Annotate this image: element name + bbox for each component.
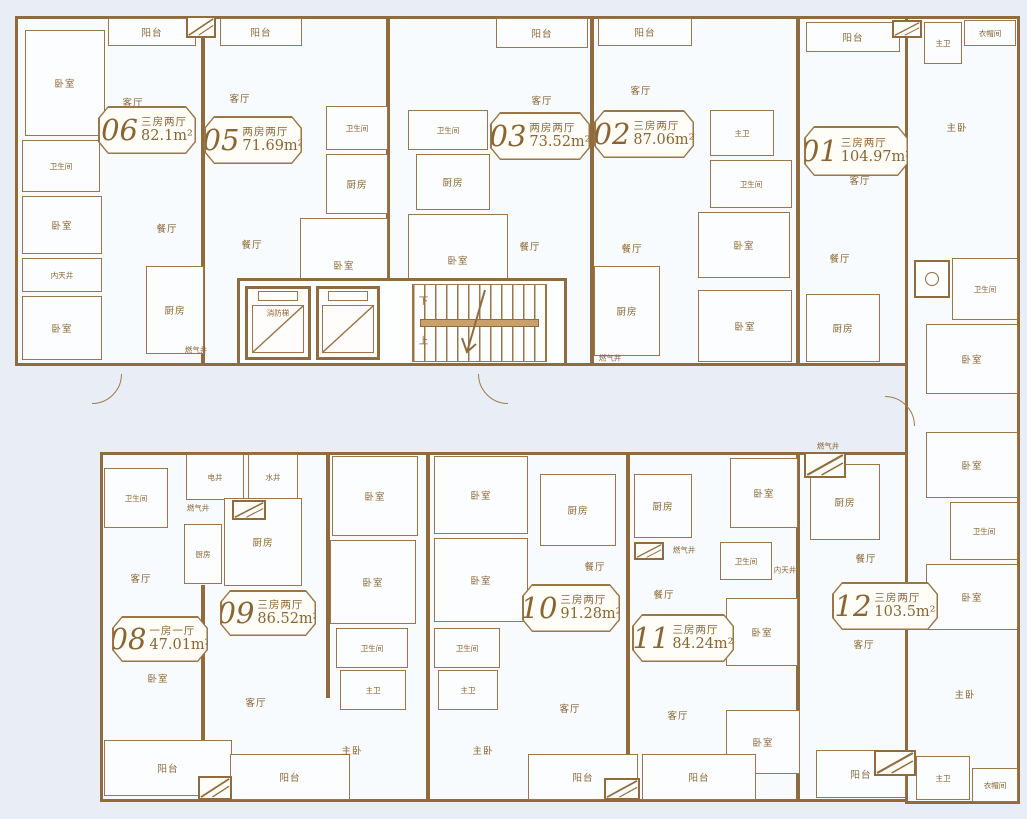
gas-shaft-label: 燃气井 bbox=[599, 353, 622, 364]
room-kitchen: 厨房 bbox=[594, 266, 660, 356]
room-master-bathroom: 主卫 bbox=[710, 110, 774, 156]
room-bathroom: 卫生间 bbox=[326, 106, 388, 150]
unit-number: 02 bbox=[594, 120, 631, 149]
unit-badge-01: 01三房两厅104.97m² bbox=[804, 126, 908, 176]
room-cloakroom: 衣帽间 bbox=[964, 20, 1016, 46]
unit-area: 73.52m² bbox=[529, 134, 590, 151]
unit-badge-inner: 09三房两厅86.52m² bbox=[222, 592, 315, 635]
room-bedroom: 卧室 bbox=[434, 538, 528, 622]
room-cloakroom: 衣帽间 bbox=[972, 768, 1018, 802]
right-tower bbox=[905, 16, 1020, 804]
unit-badge-12: 12三房两厅103.5m² bbox=[832, 582, 938, 630]
room-bedroom: 卧室 bbox=[22, 296, 102, 360]
unit-badge-inner: 01三房两厅104.97m² bbox=[806, 128, 907, 175]
unit-badge-inner: 12三房两厅103.5m² bbox=[834, 584, 937, 629]
unit-badge-inner: 10三房两厅91.28m² bbox=[524, 586, 619, 631]
unit-info: 一房一厅47.01m² bbox=[149, 625, 210, 654]
room-kitchen: 厨房 bbox=[416, 154, 490, 210]
unit-type: 三房两厅 bbox=[141, 116, 187, 128]
room-kitchen: 厨房 bbox=[326, 154, 388, 214]
room-dining-label: 餐厅 bbox=[855, 551, 876, 565]
room-bathroom: 卫生间 bbox=[720, 542, 772, 580]
unit-type: 三房两厅 bbox=[672, 624, 718, 636]
unit-badge-inner: 05两房两厅71.69m² bbox=[206, 118, 301, 163]
wall bbox=[626, 452, 630, 802]
unit-info: 三房两厅82.1m² bbox=[141, 116, 193, 145]
vent-icon bbox=[604, 778, 640, 800]
room-bathroom: 卫生间 bbox=[408, 110, 488, 150]
room-master-bedroom-label: 主卧 bbox=[946, 120, 967, 134]
unit-badge-06: 06三房两厅82.1m² bbox=[98, 106, 196, 154]
unit-number: 05 bbox=[203, 126, 240, 155]
room-bathroom: 卫生间 bbox=[952, 258, 1018, 320]
unit-info: 三房两厅103.5m² bbox=[874, 592, 935, 621]
room-master-bathroom: 主卫 bbox=[438, 670, 498, 710]
wall bbox=[796, 16, 800, 366]
room-living-label: 客厅 bbox=[667, 708, 688, 722]
unit-area: 86.52m² bbox=[257, 611, 318, 628]
unit-type: 三房两厅 bbox=[560, 594, 606, 606]
unit-area: 91.28m² bbox=[560, 606, 621, 623]
room-bedroom: 卧室 bbox=[698, 290, 792, 362]
room-bedroom: 卧室 bbox=[730, 458, 798, 528]
room-dining-label: 餐厅 bbox=[621, 241, 642, 255]
unit-badge-09: 09三房两厅86.52m² bbox=[220, 590, 316, 636]
stairs-up-label: 上 bbox=[419, 333, 430, 347]
room-bedroom: 卧室 bbox=[22, 196, 102, 254]
room-bedroom: 卧室 bbox=[698, 212, 790, 278]
elevator-indicator bbox=[328, 291, 368, 301]
room-bathroom: 卫生间 bbox=[710, 160, 792, 208]
elevator-car-icon bbox=[322, 305, 374, 353]
unit-badge-11: 11三房两厅84.24m² bbox=[632, 614, 734, 662]
room-bedroom: 卧室 bbox=[926, 564, 1018, 630]
room-bathroom: 卫生间 bbox=[336, 628, 408, 668]
room-dining-label: 餐厅 bbox=[156, 221, 177, 235]
room-kitchen: 厨房 bbox=[184, 524, 222, 584]
room-dining-label: 餐厅 bbox=[829, 251, 850, 265]
room-master-bathroom: 主卫 bbox=[924, 22, 962, 64]
room-bathroom: 卫生间 bbox=[434, 628, 500, 668]
room-master-bathroom: 主卫 bbox=[340, 670, 406, 710]
wall bbox=[426, 452, 430, 802]
room-balcony: 阳台 bbox=[496, 18, 588, 48]
gas-shaft-label: 燃气井 bbox=[187, 503, 210, 514]
room-master-bedroom-label: 主卧 bbox=[472, 743, 493, 757]
room-bedroom: 卧室 bbox=[926, 324, 1018, 394]
unit-area: 103.5m² bbox=[874, 604, 935, 621]
room-kitchen: 厨房 bbox=[806, 294, 880, 362]
unit-number: 09 bbox=[218, 599, 255, 628]
stairs-arrow-icon bbox=[455, 288, 495, 358]
unit-area: 47.01m² bbox=[149, 637, 210, 654]
unit-info: 三房两厅84.24m² bbox=[672, 624, 733, 653]
unit-badge-inner: 03两房两厅73.52m² bbox=[492, 114, 589, 159]
room-bathroom: 卫生间 bbox=[22, 140, 100, 192]
unit-badge-03: 03两房两厅73.52m² bbox=[490, 112, 590, 160]
unit-info: 三房两厅86.52m² bbox=[257, 599, 318, 628]
room-bedroom: 卧室 bbox=[330, 540, 416, 624]
room-master-bedroom-label: 主卧 bbox=[954, 687, 975, 701]
room-bathroom: 卫生间 bbox=[950, 502, 1018, 560]
vent-icon bbox=[232, 500, 266, 520]
vent-icon bbox=[892, 20, 922, 38]
room-living-label: 客厅 bbox=[630, 83, 651, 97]
room-bedroom: 卧室 bbox=[926, 432, 1018, 498]
unit-type: 两房两厅 bbox=[242, 126, 288, 138]
unit-badge-inner: 08一房一厅47.01m² bbox=[114, 618, 207, 661]
vent-icon bbox=[198, 776, 232, 800]
vent-icon bbox=[874, 750, 916, 776]
room-bedroom-label: 卧室 bbox=[147, 671, 168, 685]
gas-shaft-label: 燃气井 bbox=[185, 345, 208, 356]
unit-info: 三房两厅91.28m² bbox=[560, 594, 621, 623]
unit-area: 71.69m² bbox=[242, 138, 303, 155]
unit-badge-inner: 06三房两厅82.1m² bbox=[100, 108, 195, 153]
room-dining-label: 餐厅 bbox=[584, 559, 605, 573]
room-living-label: 客厅 bbox=[130, 571, 151, 585]
room-bedroom: 卧室 bbox=[25, 30, 105, 136]
unit-badge-08: 08一房一厅47.01m² bbox=[112, 616, 208, 662]
unit-info: 三房两厅104.97m² bbox=[841, 137, 911, 166]
room-kitchen: 厨房 bbox=[634, 474, 692, 538]
vent-icon bbox=[804, 452, 846, 478]
gas-shaft-label: 燃气井 bbox=[673, 545, 696, 556]
room-balcony: 阳台 bbox=[220, 18, 302, 46]
room-balcony: 阳台 bbox=[642, 754, 756, 800]
room-living-label: 客厅 bbox=[559, 701, 580, 715]
elevator-car-icon bbox=[252, 305, 304, 353]
room-balcony: 阳台 bbox=[230, 754, 350, 800]
room-kitchen: 厨房 bbox=[540, 474, 616, 546]
unit-area: 104.97m² bbox=[841, 149, 911, 166]
unit-info: 两房两厅73.52m² bbox=[529, 122, 590, 151]
unit-info: 两房两厅71.69m² bbox=[242, 126, 303, 155]
room-dining-label: 餐厅 bbox=[653, 587, 674, 601]
unit-type: 三房两厅 bbox=[874, 592, 920, 604]
room-balcony: 阳台 bbox=[806, 22, 900, 52]
unit-number: 12 bbox=[835, 592, 872, 621]
room-living-label: 客厅 bbox=[531, 93, 552, 107]
room-inner-courtyard: 内天井 bbox=[22, 258, 102, 292]
vent-icon bbox=[634, 542, 664, 560]
unit-type: 三房两厅 bbox=[257, 599, 303, 611]
room-bathroom: 卫生间 bbox=[104, 468, 168, 528]
room-inner-courtyard-label: 内天井 bbox=[774, 565, 797, 576]
toilet-bowl-icon bbox=[925, 272, 939, 286]
unit-number: 03 bbox=[490, 122, 527, 151]
unit-number: 08 bbox=[110, 625, 147, 654]
unit-badge-inner: 11三房两厅84.24m² bbox=[634, 616, 733, 661]
unit-badge-05: 05两房两厅71.69m² bbox=[204, 116, 302, 164]
unit-number: 10 bbox=[521, 594, 558, 623]
unit-type: 三房两厅 bbox=[633, 120, 679, 132]
room-bedroom: 卧室 bbox=[434, 456, 528, 534]
room-living-label: 客厅 bbox=[229, 91, 250, 105]
room-balcony: 阳台 bbox=[598, 18, 692, 46]
room-bedroom: 卧室 bbox=[332, 456, 418, 536]
room-master-bedroom-label: 主卧 bbox=[341, 743, 362, 757]
room-dining-label: 餐厅 bbox=[519, 239, 540, 253]
elevator-indicator bbox=[258, 291, 298, 301]
unit-type: 三房两厅 bbox=[841, 137, 887, 149]
unit-type: 两房两厅 bbox=[529, 122, 575, 134]
unit-info: 三房两厅87.06m² bbox=[633, 120, 694, 149]
room-balcony: 阳台 bbox=[108, 18, 196, 46]
unit-number: 06 bbox=[101, 116, 138, 145]
toilet-icon bbox=[914, 260, 950, 298]
stairs-down-label: 下 bbox=[419, 293, 430, 307]
room-water-shaft: 水井 bbox=[248, 454, 298, 500]
unit-number: 11 bbox=[633, 624, 670, 653]
vent-icon bbox=[186, 16, 216, 38]
unit-badge-inner: 02三房两厅87.06m² bbox=[596, 112, 693, 157]
unit-area: 87.06m² bbox=[633, 132, 694, 149]
unit-area: 84.24m² bbox=[672, 636, 733, 653]
room-kitchen: 厨房 bbox=[146, 266, 204, 354]
floor-plan: 消防梯 下 上 卧室 卫生间 卧室 内天井 卧室 阳台 客厅 餐厅 厨房 燃气井… bbox=[0, 0, 1027, 819]
room-master-bathroom: 主卫 bbox=[916, 756, 970, 800]
gas-shaft-label: 燃气井 bbox=[817, 441, 840, 452]
room-electric-shaft: 电井 bbox=[186, 454, 244, 500]
room-living-label: 客厅 bbox=[853, 637, 874, 651]
unit-type: 一房一厅 bbox=[149, 625, 195, 637]
unit-area: 82.1m² bbox=[141, 128, 193, 145]
unit-badge-02: 02三房两厅87.06m² bbox=[594, 110, 694, 158]
room-living-label: 客厅 bbox=[245, 695, 266, 709]
unit-badge-10: 10三房两厅91.28m² bbox=[522, 584, 620, 632]
unit-number: 01 bbox=[801, 137, 838, 166]
room-bedroom: 卧室 bbox=[726, 598, 798, 666]
room-dining-label: 餐厅 bbox=[241, 237, 262, 251]
